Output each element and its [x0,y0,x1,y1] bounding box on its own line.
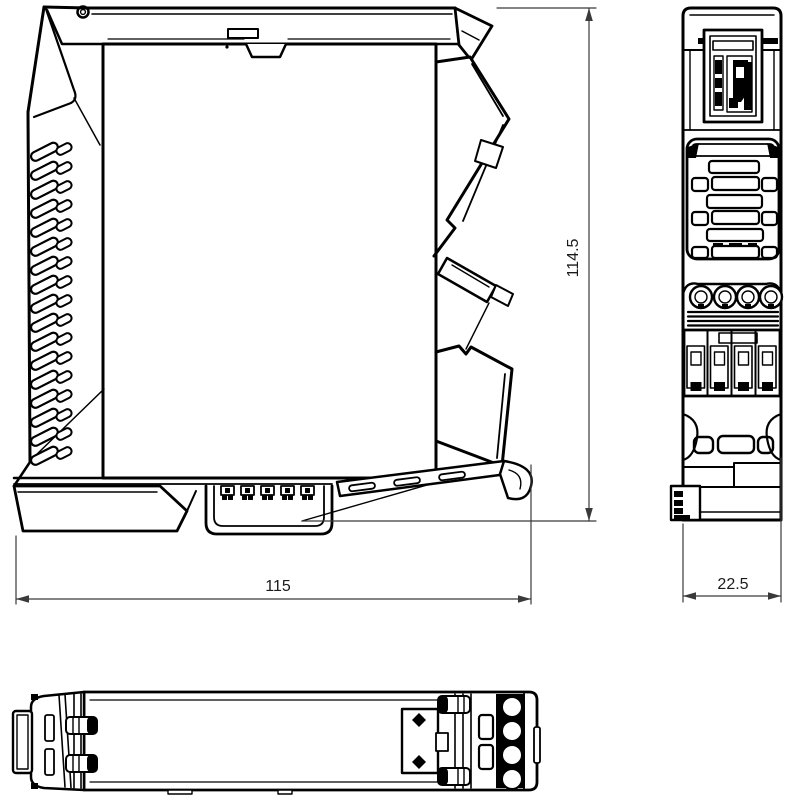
dimension-depth-label: 22.5 [717,576,748,593]
technical-drawing: 115 114.5 22.5 [0,0,800,800]
din-slider [13,692,97,790]
front-view [671,8,782,520]
arrowhead [518,595,531,603]
rj45-port [704,30,762,122]
arrowhead [768,592,781,600]
arrowhead [16,595,29,603]
drawing-canvas: 115 114.5 22.5 [0,0,800,800]
arrowhead [585,508,593,521]
dimension-width-label: 115 [265,578,291,595]
bottom-view [13,692,540,794]
terminal-block [684,330,780,396]
cage-clamp-levers [434,57,513,466]
side-view-housing [28,7,492,479]
config-panel [687,139,779,259]
dimension-height-label: 114.5 [565,238,582,277]
arrowhead [683,592,696,600]
side-view [14,7,532,535]
arrowhead [585,8,593,21]
vent-grille [29,141,72,466]
bottom-bus-connector [671,486,700,520]
